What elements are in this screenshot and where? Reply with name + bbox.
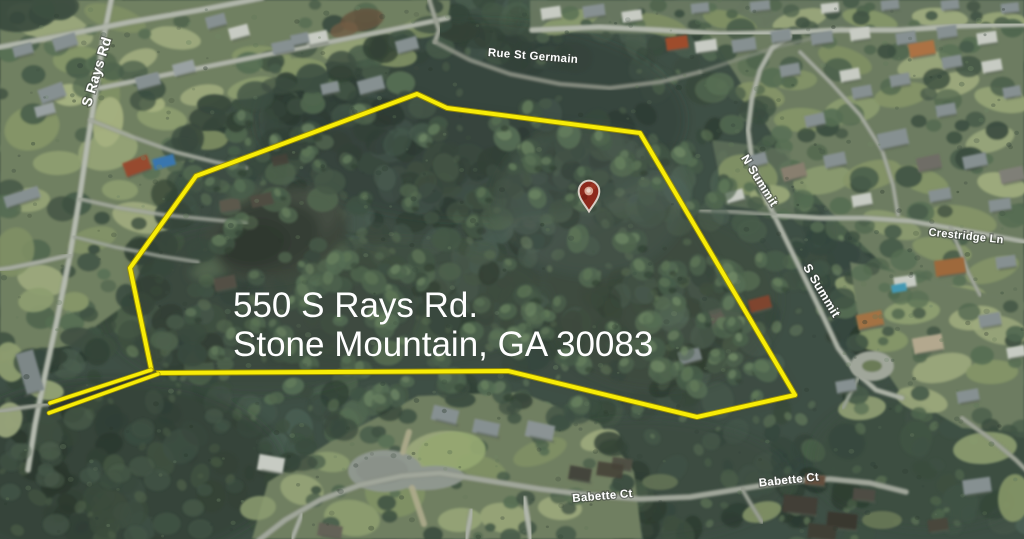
svg-text:Stone Mountain, GA 30083: Stone Mountain, GA 30083 (233, 325, 653, 364)
svg-text:550 S Rays Rd.: 550 S Rays Rd. (233, 286, 478, 325)
